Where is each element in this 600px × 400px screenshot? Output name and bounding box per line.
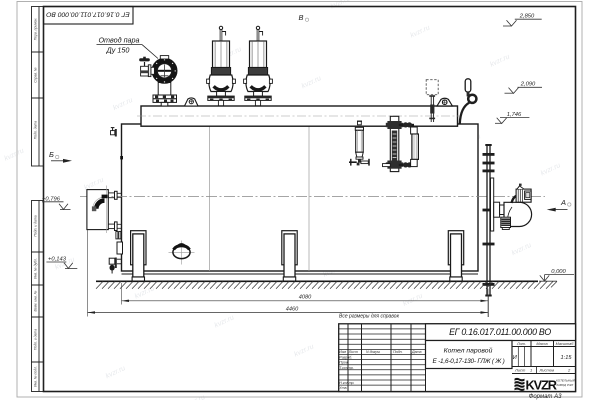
svg-text:Перв. примен.: Перв. примен. — [34, 18, 38, 41]
svg-text:Подп. и дата: Подп. и дата — [34, 329, 38, 350]
svg-text:Утв.: Утв. — [339, 386, 347, 390]
svg-text:N докум.: N докум. — [366, 350, 381, 354]
svg-text:Т.контр.: Т.контр. — [339, 366, 354, 370]
svg-text:Подп.: Подп. — [393, 350, 403, 354]
svg-text:Разраб.: Разраб. — [339, 356, 352, 360]
svg-text:Инв. № дубл.: Инв. № дубл. — [34, 258, 38, 279]
svg-text:Лит.: Лит. — [516, 342, 526, 346]
svg-text:Лист: Лист — [514, 368, 526, 373]
svg-text:Взам. инв. №: Взам. инв. № — [34, 290, 38, 311]
svg-text:0,000: 0,000 — [551, 269, 566, 275]
svg-text:А: А — [560, 198, 566, 207]
svg-text:КОТЕЛЬНЫЙ: КОТЕЛЬНЫЙ — [556, 379, 576, 383]
svg-text:В: В — [298, 13, 303, 22]
svg-text:И: И — [513, 355, 517, 361]
svg-text:Подп. и дата: Подп. и дата — [34, 215, 38, 236]
svg-text:2,850: 2,850 — [519, 14, 535, 20]
svg-text:Ду 150: Ду 150 — [106, 46, 130, 55]
svg-text:Изм: Изм — [339, 350, 346, 354]
svg-text:Формат А3: Формат А3 — [529, 394, 562, 400]
svg-text:ЕГ 0.16.017.011.00.000 ВО: ЕГ 0.16.017.011.00.000 ВО — [46, 10, 130, 17]
svg-text:Масштаб: Масштаб — [556, 342, 575, 346]
svg-text:Дата: Дата — [411, 350, 421, 354]
svg-text:KVZR: KVZR — [526, 378, 557, 393]
svg-text:Б: Б — [49, 150, 54, 159]
svg-text:4080: 4080 — [299, 295, 312, 301]
svg-text:Е -1,6-0,17-130- ГЛЖ ( Ж ): Е -1,6-0,17-130- ГЛЖ ( Ж ) — [432, 358, 504, 365]
svg-text:Н.контр.: Н.контр. — [339, 381, 354, 385]
svg-text:Подп. дата: Подп. дата — [34, 121, 38, 140]
svg-text:Лист: Лист — [348, 350, 358, 354]
svg-text:+0,143: +0,143 — [48, 256, 67, 262]
svg-text:4460: 4460 — [286, 306, 299, 312]
svg-text:ЗАВОД РЭП: ЗАВОД РЭП — [556, 383, 574, 387]
svg-text:Котел паровой: Котел паровой — [444, 347, 493, 355]
svg-text:Справ. №: Справ. № — [34, 67, 38, 83]
svg-text:Все размеры для справок: Все размеры для справок — [339, 314, 400, 320]
svg-text:Листов: Листов — [539, 368, 555, 373]
svg-text:2,090: 2,090 — [520, 82, 536, 88]
svg-text:1,746: 1,746 — [507, 112, 522, 118]
svg-text:1: 1 — [530, 368, 532, 373]
svg-text:Масса: Масса — [536, 342, 547, 346]
svg-text:Отвод пара: Отвод пара — [98, 36, 139, 45]
svg-text:ЕГ 0.16.017.011.00.000 ВО: ЕГ 0.16.017.011.00.000 ВО — [449, 327, 551, 337]
svg-text:1:15: 1:15 — [561, 355, 573, 361]
svg-text:Пров.: Пров. — [339, 361, 348, 365]
svg-text:Инв. № подл.: Инв. № подл. — [34, 366, 38, 387]
svg-text:+0,796: +0,796 — [42, 196, 61, 202]
